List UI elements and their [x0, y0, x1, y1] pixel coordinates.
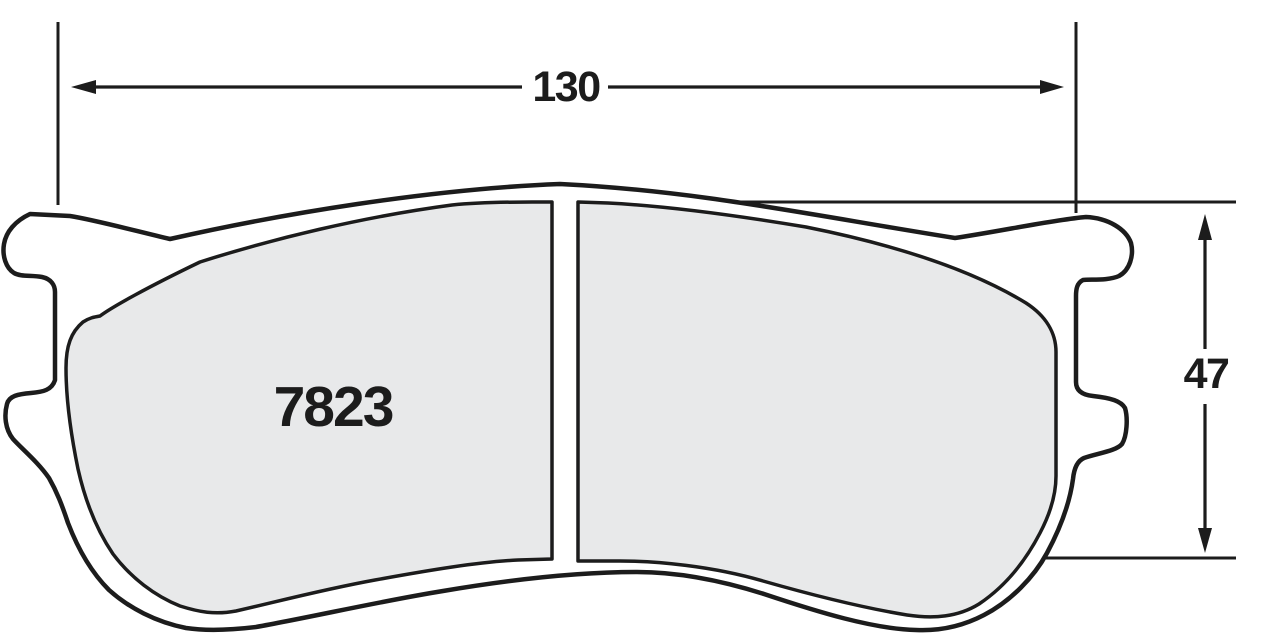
arrowhead-down-icon: [1198, 528, 1212, 553]
part-number-label: 7823: [274, 375, 393, 439]
arrowhead-right-icon: [1040, 80, 1064, 94]
height-dimension-label: 47: [1184, 350, 1229, 398]
brake-pad-technical-drawing: 130 47 7823: [0, 0, 1262, 634]
height-dimension: 47: [1184, 214, 1229, 553]
arrowhead-left-icon: [71, 80, 96, 94]
width-dimension: 130: [71, 63, 1064, 111]
width-dimension-label: 130: [532, 63, 600, 111]
arrowhead-up-icon: [1198, 214, 1212, 240]
drawing-svg: 130 47 7823: [0, 0, 1262, 634]
